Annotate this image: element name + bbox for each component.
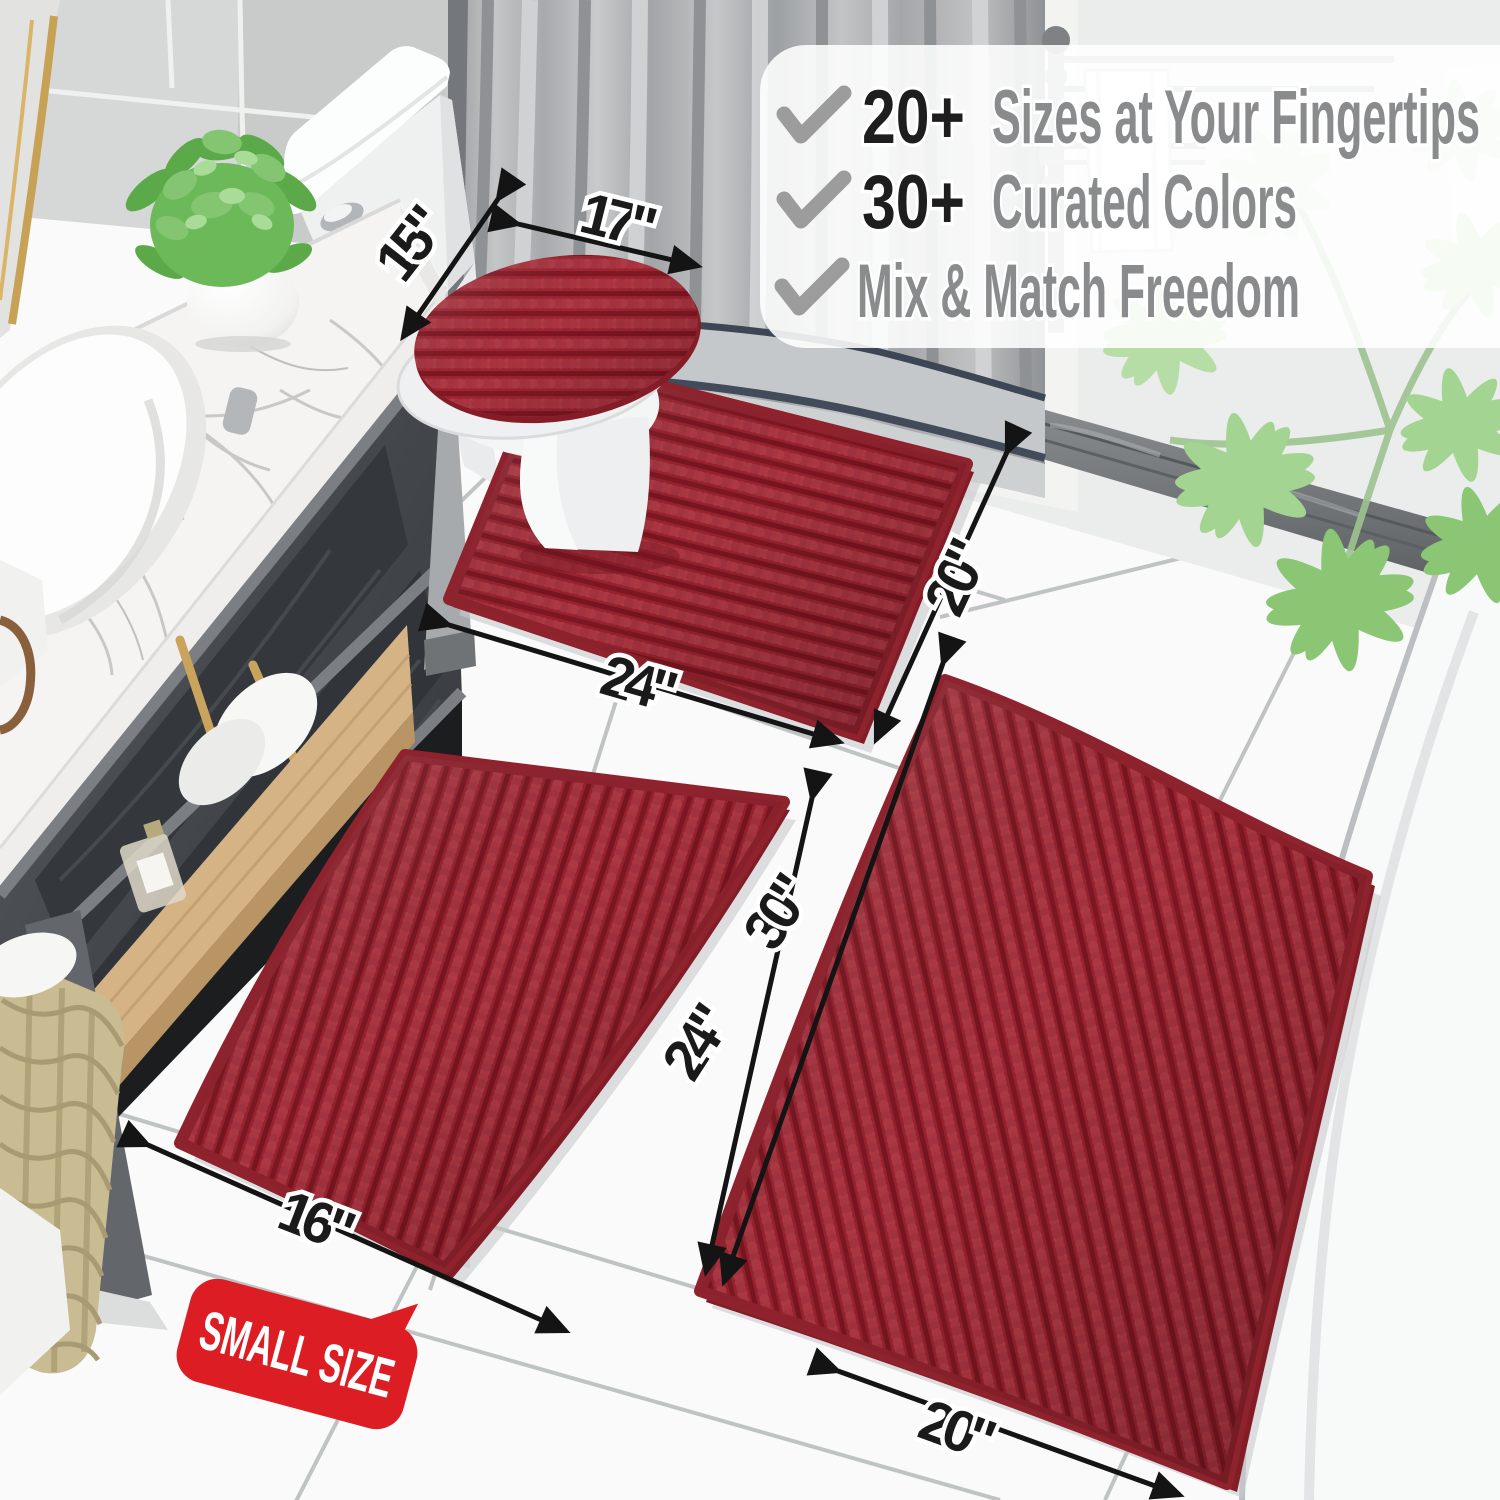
svg-text:Mix & Match Freedom: Mix & Match Freedom <box>857 249 1300 334</box>
svg-text:Sizes at Your Fingertips: Sizes at Your Fingertips <box>992 75 1480 160</box>
svg-text:30+: 30+ <box>862 160 965 245</box>
svg-text:20+: 20+ <box>862 75 965 160</box>
svg-text:Curated Colors: Curated Colors <box>992 160 1297 245</box>
